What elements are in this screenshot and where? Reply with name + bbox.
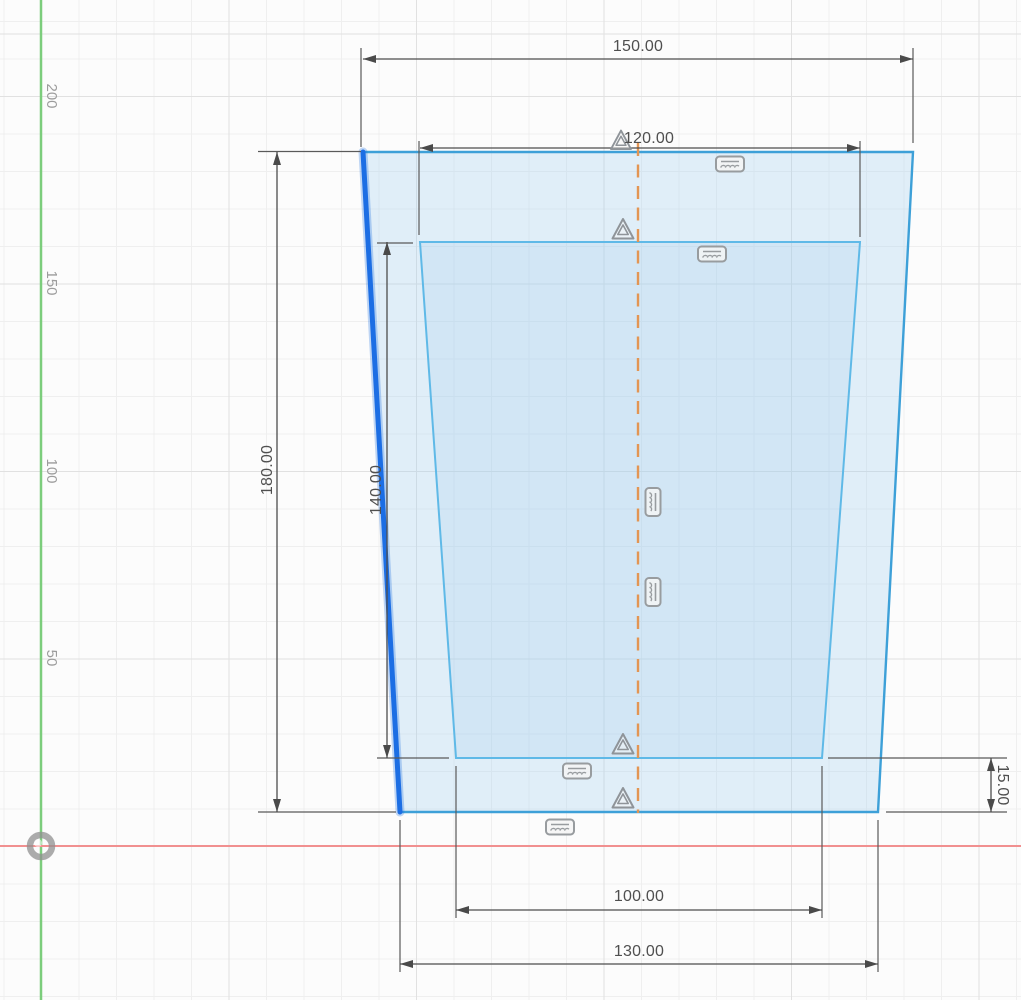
arrow-down-icon	[987, 799, 995, 812]
dimension-value[interactable]: 150.00	[613, 38, 663, 55]
arrow-up-icon	[273, 152, 281, 165]
grid-label-150: 150	[43, 270, 60, 295]
collinear-constraint-icon[interactable]	[646, 578, 661, 606]
arrow-right-icon	[900, 55, 913, 63]
collinear-constraint-icon[interactable]	[563, 764, 591, 779]
arrow-right-icon	[865, 960, 878, 968]
dimension-value[interactable]: 140.00	[368, 465, 385, 515]
arrow-down-icon	[383, 745, 391, 758]
grid-label-100: 100	[43, 458, 60, 483]
arrow-right-icon	[809, 906, 822, 914]
arrow-down-icon	[273, 799, 281, 812]
sketch-svg: 150.00 120.00 180.00 140.00 15.00	[0, 0, 1021, 1000]
grid-label-200: 200	[43, 83, 60, 108]
inner-profile-polygon[interactable]	[420, 242, 860, 758]
collinear-constraint-icon[interactable]	[546, 820, 574, 835]
arrow-left-icon	[400, 960, 413, 968]
arrow-up-icon	[987, 758, 995, 771]
dimension-value[interactable]: 120.00	[624, 130, 674, 147]
dimension-value[interactable]: 100.00	[614, 888, 664, 905]
dimension-value[interactable]: 130.00	[614, 943, 664, 960]
arrow-left-icon	[363, 55, 376, 63]
collinear-constraint-icon[interactable]	[698, 247, 726, 262]
grid-label-50: 50	[43, 650, 60, 667]
arrow-left-icon	[456, 906, 469, 914]
sketch-canvas: 150.00 120.00 180.00 140.00 15.00	[0, 0, 1021, 1000]
dimension-value[interactable]: 15.00	[994, 764, 1011, 805]
dimension-value[interactable]: 180.00	[259, 445, 276, 495]
collinear-constraint-icon[interactable]	[716, 157, 744, 172]
collinear-constraint-icon[interactable]	[646, 488, 661, 516]
